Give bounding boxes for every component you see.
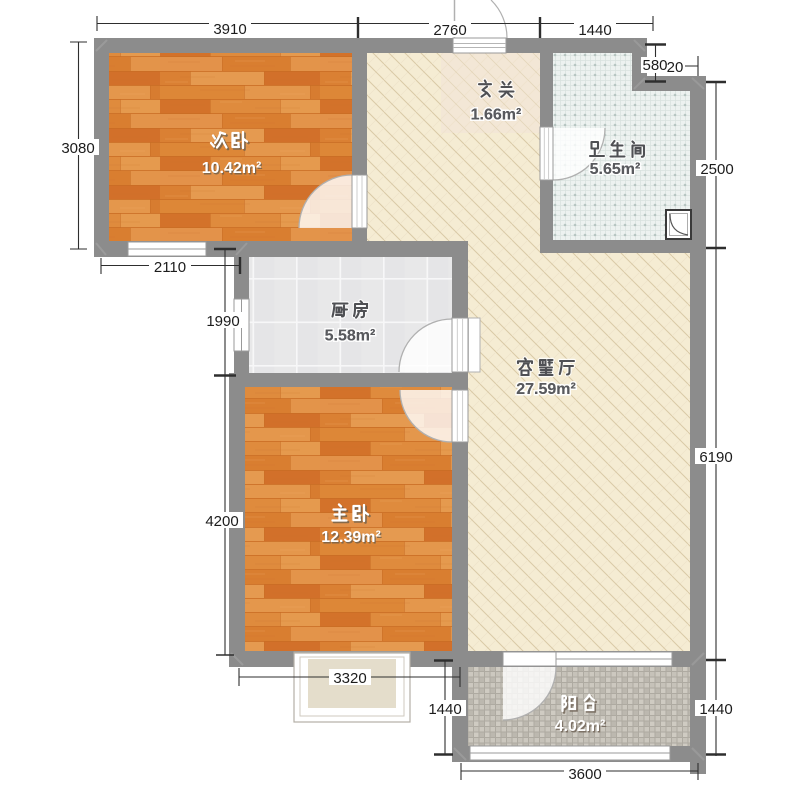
svg-text:20: 20 [667, 59, 684, 76]
svg-text:3080: 3080 [61, 140, 94, 157]
svg-text:4200: 4200 [205, 513, 238, 530]
svg-text:2500: 2500 [700, 161, 733, 178]
svg-text:580: 580 [642, 57, 667, 74]
svg-text:10.42m²: 10.42m² [202, 160, 262, 177]
svg-text:6190: 6190 [699, 449, 732, 466]
svg-text:3600: 3600 [568, 766, 601, 783]
svg-text:2760: 2760 [433, 22, 466, 39]
svg-text:5.58m²: 5.58m² [325, 328, 376, 345]
svg-text:5.65m²: 5.65m² [590, 161, 641, 178]
svg-text:1.66m²: 1.66m² [471, 107, 522, 124]
svg-text:1440: 1440 [578, 22, 611, 39]
svg-text:27.59m²: 27.59m² [516, 381, 576, 398]
svg-text:1440: 1440 [428, 701, 461, 718]
svg-text:3320: 3320 [333, 670, 366, 687]
svg-text:1440: 1440 [699, 701, 732, 718]
svg-text:4.02m²: 4.02m² [555, 718, 606, 735]
svg-text:1990: 1990 [206, 313, 239, 330]
svg-text:2110: 2110 [154, 259, 186, 276]
svg-text:3910: 3910 [213, 21, 246, 38]
svg-text:12.39m²: 12.39m² [321, 529, 381, 546]
